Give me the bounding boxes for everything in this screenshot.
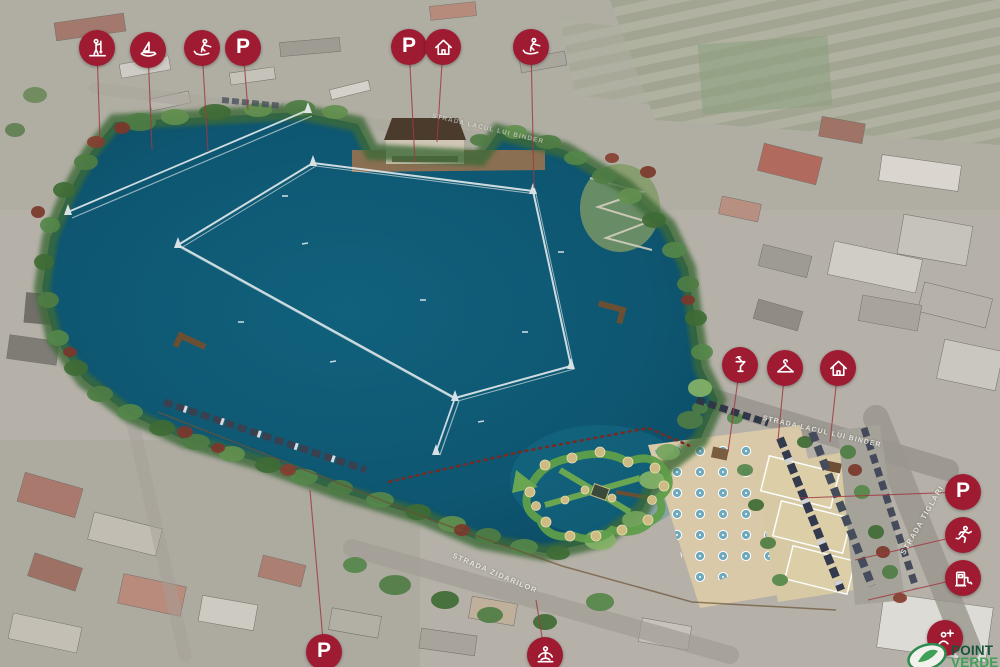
runner-icon	[952, 524, 975, 547]
house-icon	[432, 36, 455, 59]
waterski-icon	[191, 37, 214, 60]
parking-marker: P	[306, 634, 342, 667]
sailing-icon	[137, 39, 160, 62]
sailing-marker	[130, 32, 166, 68]
hanger-marker	[767, 350, 803, 386]
house-marker	[820, 350, 856, 386]
waterski-icon	[520, 36, 543, 59]
parking-marker: P	[391, 29, 427, 65]
parking-icon: P	[317, 639, 331, 663]
cocktail-icon	[729, 354, 752, 377]
site-plan: PPPP STRADA LACUL LUI BINDER STRADA LACU…	[0, 0, 1000, 667]
parking-marker: P	[225, 30, 261, 66]
logo-line2: VERDE	[951, 657, 999, 667]
leaf-logo-icon	[906, 642, 948, 667]
parking-marker: P	[945, 474, 981, 510]
parking-icon: P	[236, 35, 250, 59]
hanger-icon	[774, 357, 797, 380]
house-marker	[425, 29, 461, 65]
sup-icon	[86, 37, 109, 60]
house-icon	[827, 357, 850, 380]
runner-marker	[945, 517, 981, 553]
charging-icon	[952, 567, 975, 590]
waterski-marker	[184, 30, 220, 66]
cocktail-marker	[722, 347, 758, 383]
sup-marker	[79, 30, 115, 66]
parking-icon: P	[402, 34, 416, 58]
parking-icon: P	[956, 479, 970, 503]
point-verde-logo: POINT VERDE	[906, 642, 999, 667]
charging-marker	[945, 560, 981, 596]
waterski-marker	[513, 29, 549, 65]
yoga-icon	[534, 644, 557, 667]
markers-layer: PPPP	[0, 0, 1000, 667]
yoga-marker	[527, 637, 563, 667]
